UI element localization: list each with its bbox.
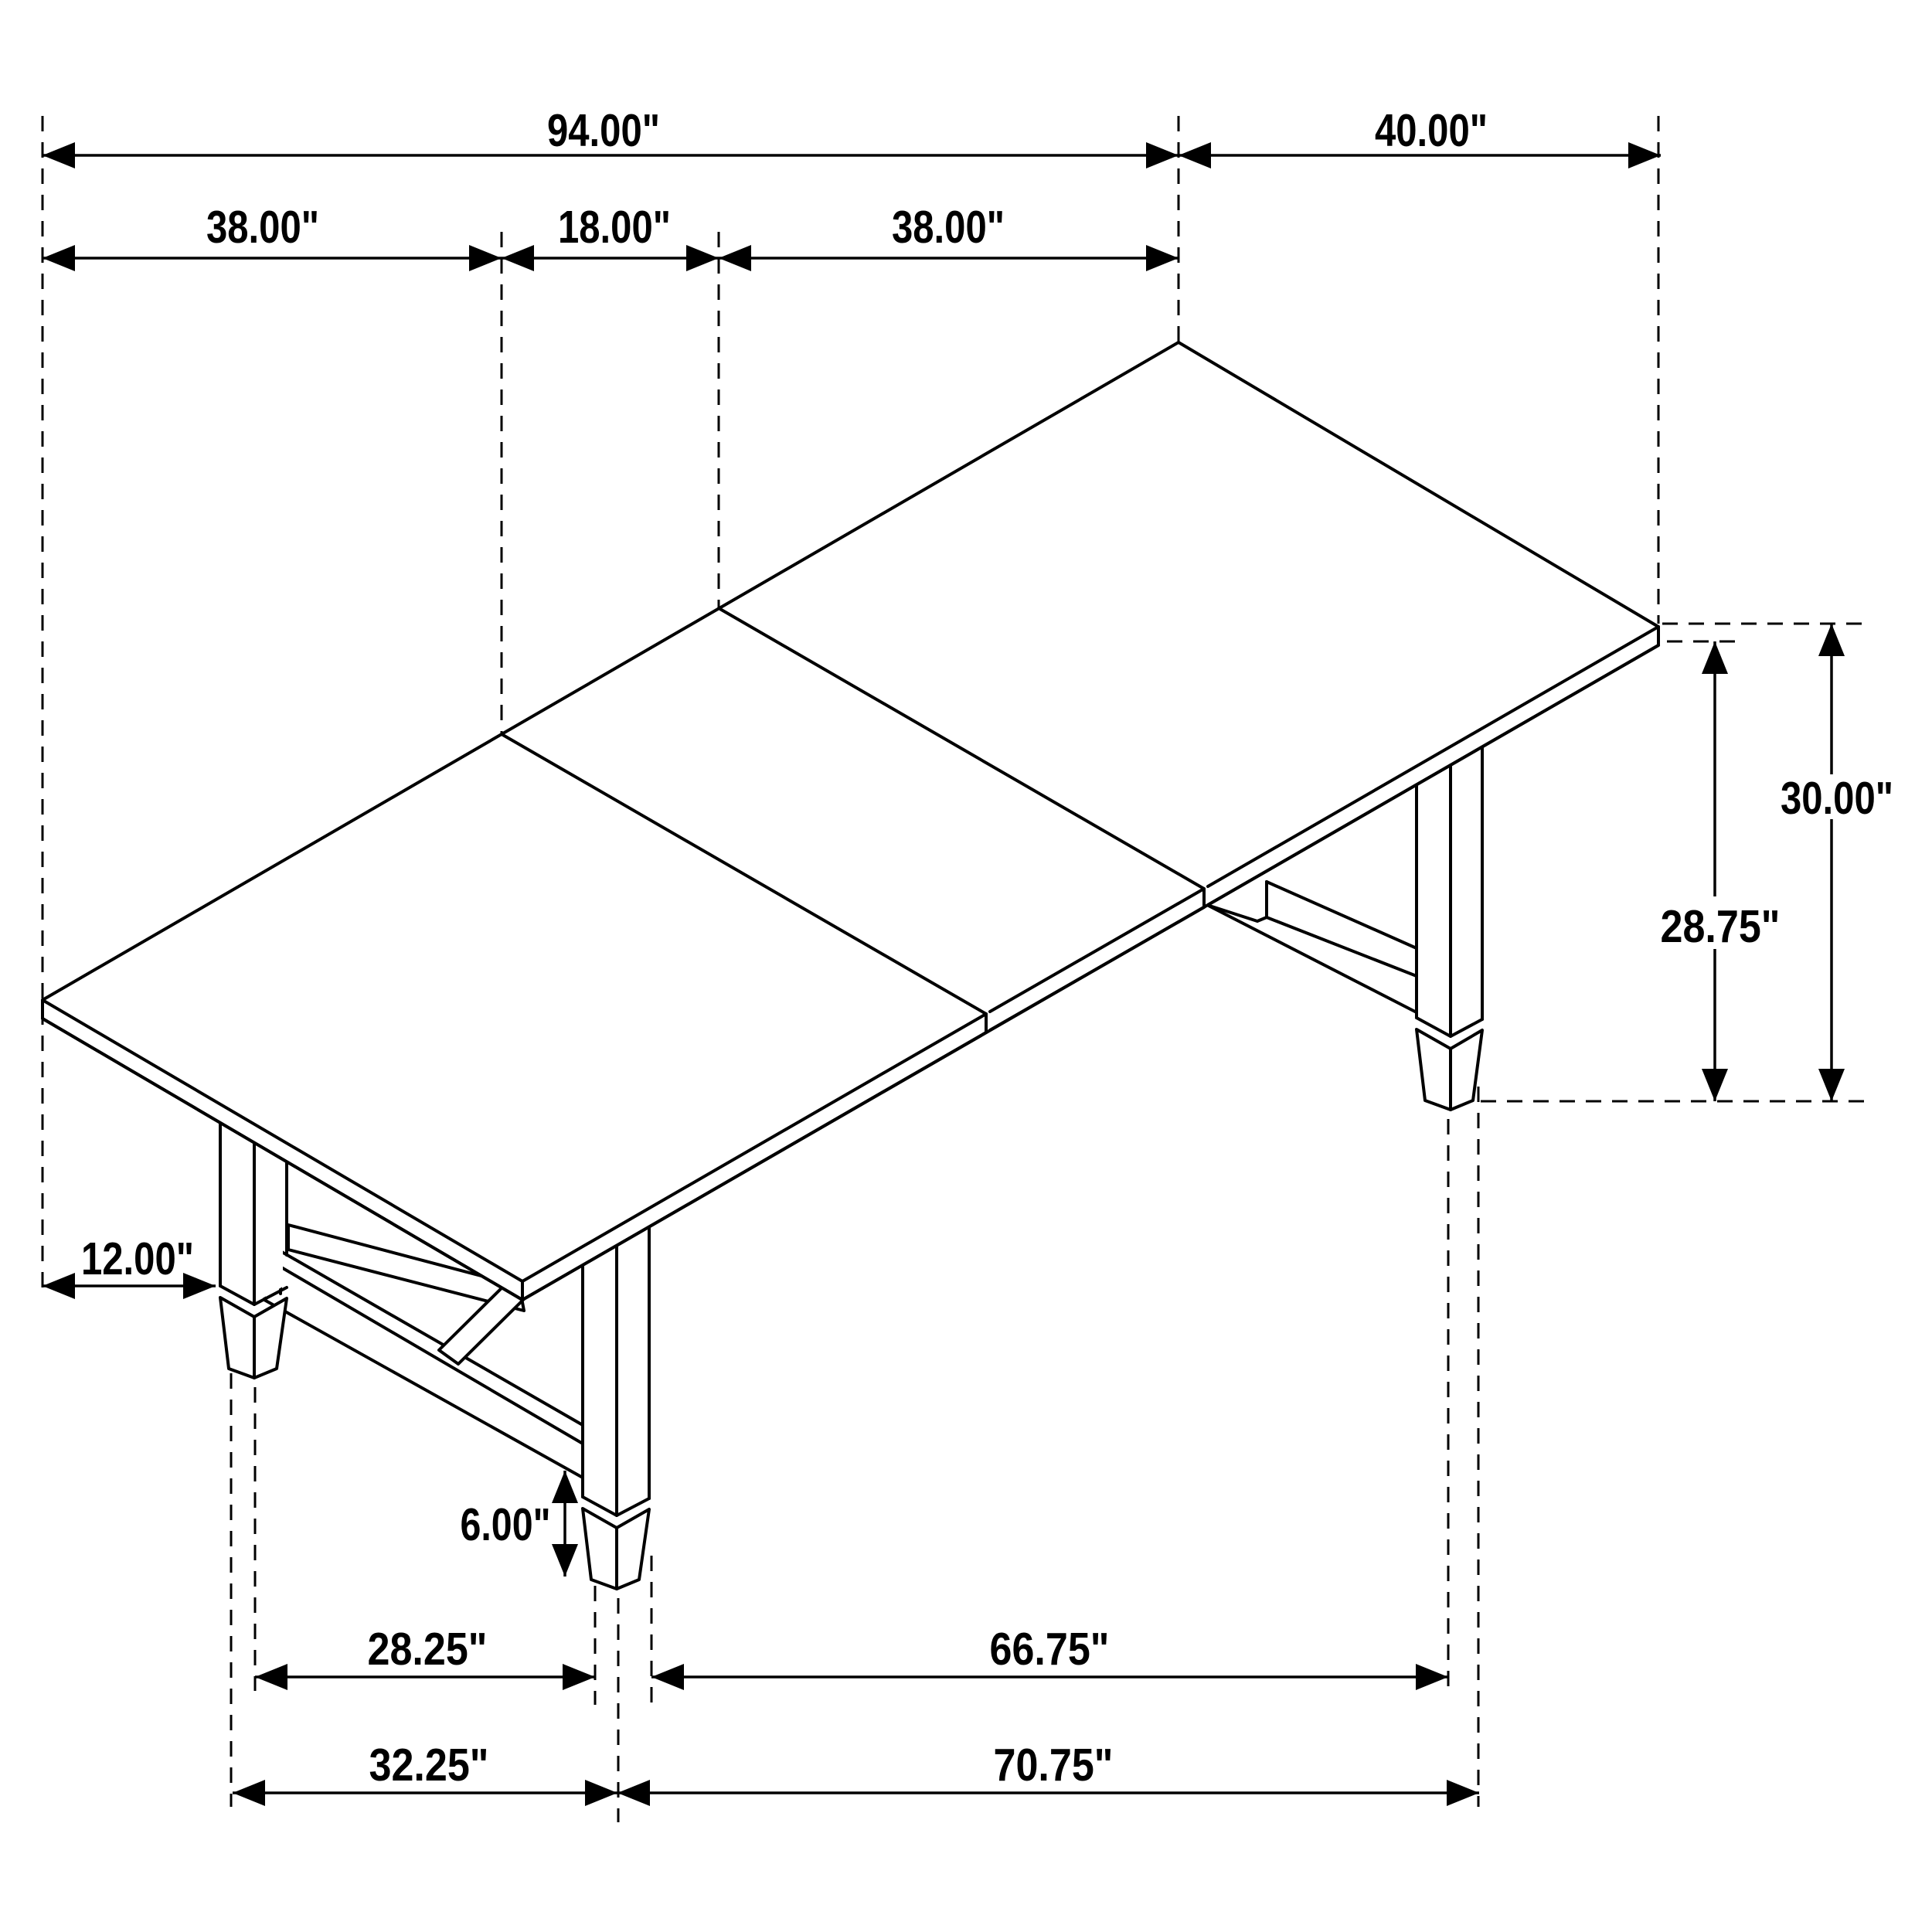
svg-text:28.25": 28.25" [368,1624,488,1675]
svg-text:32.25": 32.25" [369,1740,489,1791]
svg-text:66.75": 66.75" [990,1624,1110,1675]
svg-text:28.75": 28.75" [1661,901,1781,952]
svg-text:94.00": 94.00" [547,105,660,156]
svg-text:40.00": 40.00" [1375,105,1488,156]
svg-text:6.00": 6.00" [461,1499,551,1550]
svg-text:38.00": 38.00" [206,202,319,253]
svg-text:12.00": 12.00" [81,1233,194,1284]
svg-text:38.00": 38.00" [892,202,1005,253]
svg-text:30.00": 30.00" [1781,773,1893,824]
svg-text:70.75": 70.75" [994,1740,1114,1791]
svg-text:18.00": 18.00" [558,202,671,253]
